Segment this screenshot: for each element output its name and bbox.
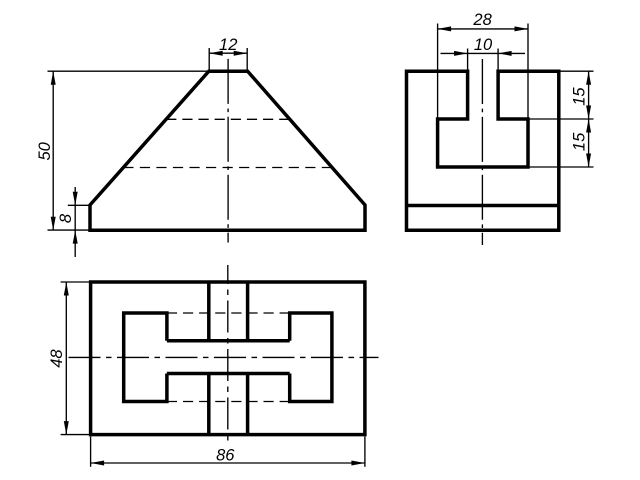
svg-text:8: 8 (57, 213, 75, 223)
svg-text:48: 48 (48, 349, 66, 368)
svg-text:15: 15 (570, 132, 588, 151)
svg-text:12: 12 (219, 36, 237, 54)
svg-text:86: 86 (216, 446, 235, 464)
svg-text:15: 15 (570, 87, 588, 106)
svg-text:28: 28 (472, 11, 492, 29)
svg-text:10: 10 (474, 36, 493, 54)
svg-text:50: 50 (36, 141, 54, 160)
